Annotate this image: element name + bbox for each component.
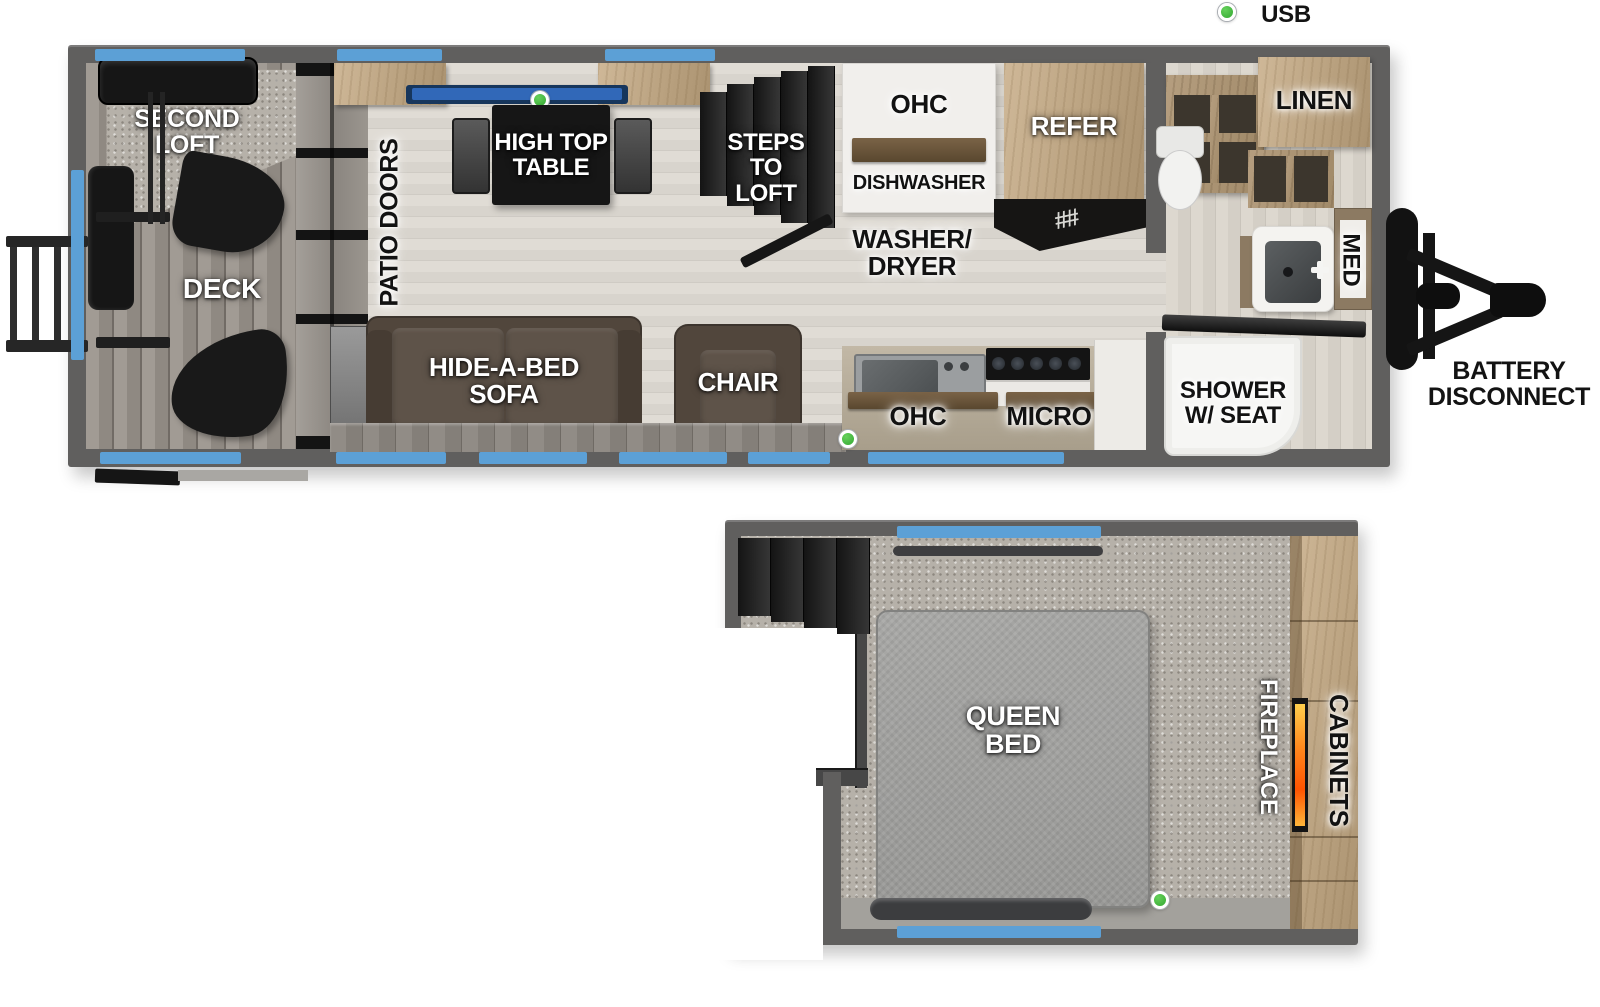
refer-label: REFER [1004,112,1144,142]
window [897,926,1101,938]
dishwasher-label: DISHWASHER [842,170,996,196]
fireplace-label: FIREPLACE [1246,652,1290,842]
stairwell-opening [702,628,823,960]
bath-sink [1252,226,1334,312]
burner-icon [1011,357,1024,370]
entry-step [95,469,180,486]
floor-ledge [330,423,846,452]
footboard-bench [870,898,1092,920]
hitch-frame-bar [1405,305,1504,357]
window [337,49,442,61]
fireplace-insert [1292,698,1308,832]
deck-gate-bar [160,92,165,224]
steps-to-loft-label: STEPS TO LOFT [701,120,831,216]
toilet-bowl [1158,150,1202,210]
window [479,452,587,464]
shower-label: SHOWER W/ SEAT [1158,374,1308,432]
ohc-dinette-label: OHC [842,90,996,120]
faucet-handle [960,362,969,371]
ladder-rung [10,247,17,340]
ladder-rung [32,247,39,340]
window [897,526,1101,538]
micro-label: MICRO [989,402,1109,432]
faucet-handle [944,362,953,371]
usb-port-indicator-loft [1151,891,1169,909]
window-bench [406,85,628,104]
chair-label: CHAIR [674,368,802,398]
deck-label: DECK [167,272,277,306]
underbody-skirt [178,470,308,481]
patio-doors-label: PATIO DOORS [350,137,430,307]
sofa-label: HIDE-A-BED SOFA [366,350,642,412]
stairwell-opening [823,628,857,774]
rear-door-glass [71,170,84,360]
entry-door-glass [88,166,134,310]
cabinets-label: CABINETS [1316,660,1360,860]
cabinet-divider [1290,880,1358,882]
loft-wall-segment [823,772,841,945]
usb-port-indicator-kitchen [839,430,857,448]
deck-rail [96,212,170,222]
cooktop [986,348,1090,380]
burner-icon [1068,357,1081,370]
sink-drain [1283,267,1293,277]
flame-icon [1295,704,1305,826]
window [95,49,245,61]
window [605,49,715,61]
tv-icon [98,57,258,105]
burner-icon [992,357,1005,370]
bath-cabinet-rail [1286,156,1294,202]
deck-gate-bar [148,92,153,224]
pantry-panel [1094,340,1146,450]
burner-icon [1030,357,1043,370]
window [868,452,1064,464]
washer-dryer-label: WASHER/ DRYER [832,222,992,284]
loft-stair-step [837,538,870,634]
deck-rail [96,337,170,348]
faucet-icon [1317,261,1323,279]
floorplan-canvas: USB SECOND LOFT DECK PATIO DOORS HIGH TO… [0,0,1600,1007]
usb-indicator-icon [1218,3,1236,21]
window [619,452,727,464]
bath-cabinet-rail [1210,95,1219,183]
hitch-coupler [1490,283,1546,317]
hitch-jack [1416,283,1460,309]
cabinet-shelf [852,138,986,162]
loft-stair-step [738,538,771,616]
window [748,452,830,464]
ladder-rung [54,247,61,340]
queen-bed-label: QUEEN BED [876,695,1150,765]
loft-railing [855,630,867,788]
battery-disconnect-label: BATTERY DISCONNECT [1428,355,1590,413]
stool [452,118,490,194]
window [100,452,241,464]
cabinet-divider [1290,620,1358,622]
window-bench-glass [412,88,622,100]
bath-wall [1146,63,1166,253]
loft-stair-step [771,538,804,622]
high-top-table-label: HIGH TOP TABLE [480,107,622,203]
ohc-kitchen-label: OHC [858,402,978,432]
burner-icon [1049,357,1062,370]
window [336,452,446,464]
med-label: MED [1328,214,1374,306]
bath-cabinet [1248,150,1334,208]
sink-basin [862,360,938,396]
usb-legend: USB [1218,3,1338,29]
linen-label: LINEN [1258,86,1370,116]
loft-stair-step [804,538,837,628]
usb-legend-label: USB [1256,1,1316,29]
stool [614,118,652,194]
headboard-rail [893,546,1103,556]
